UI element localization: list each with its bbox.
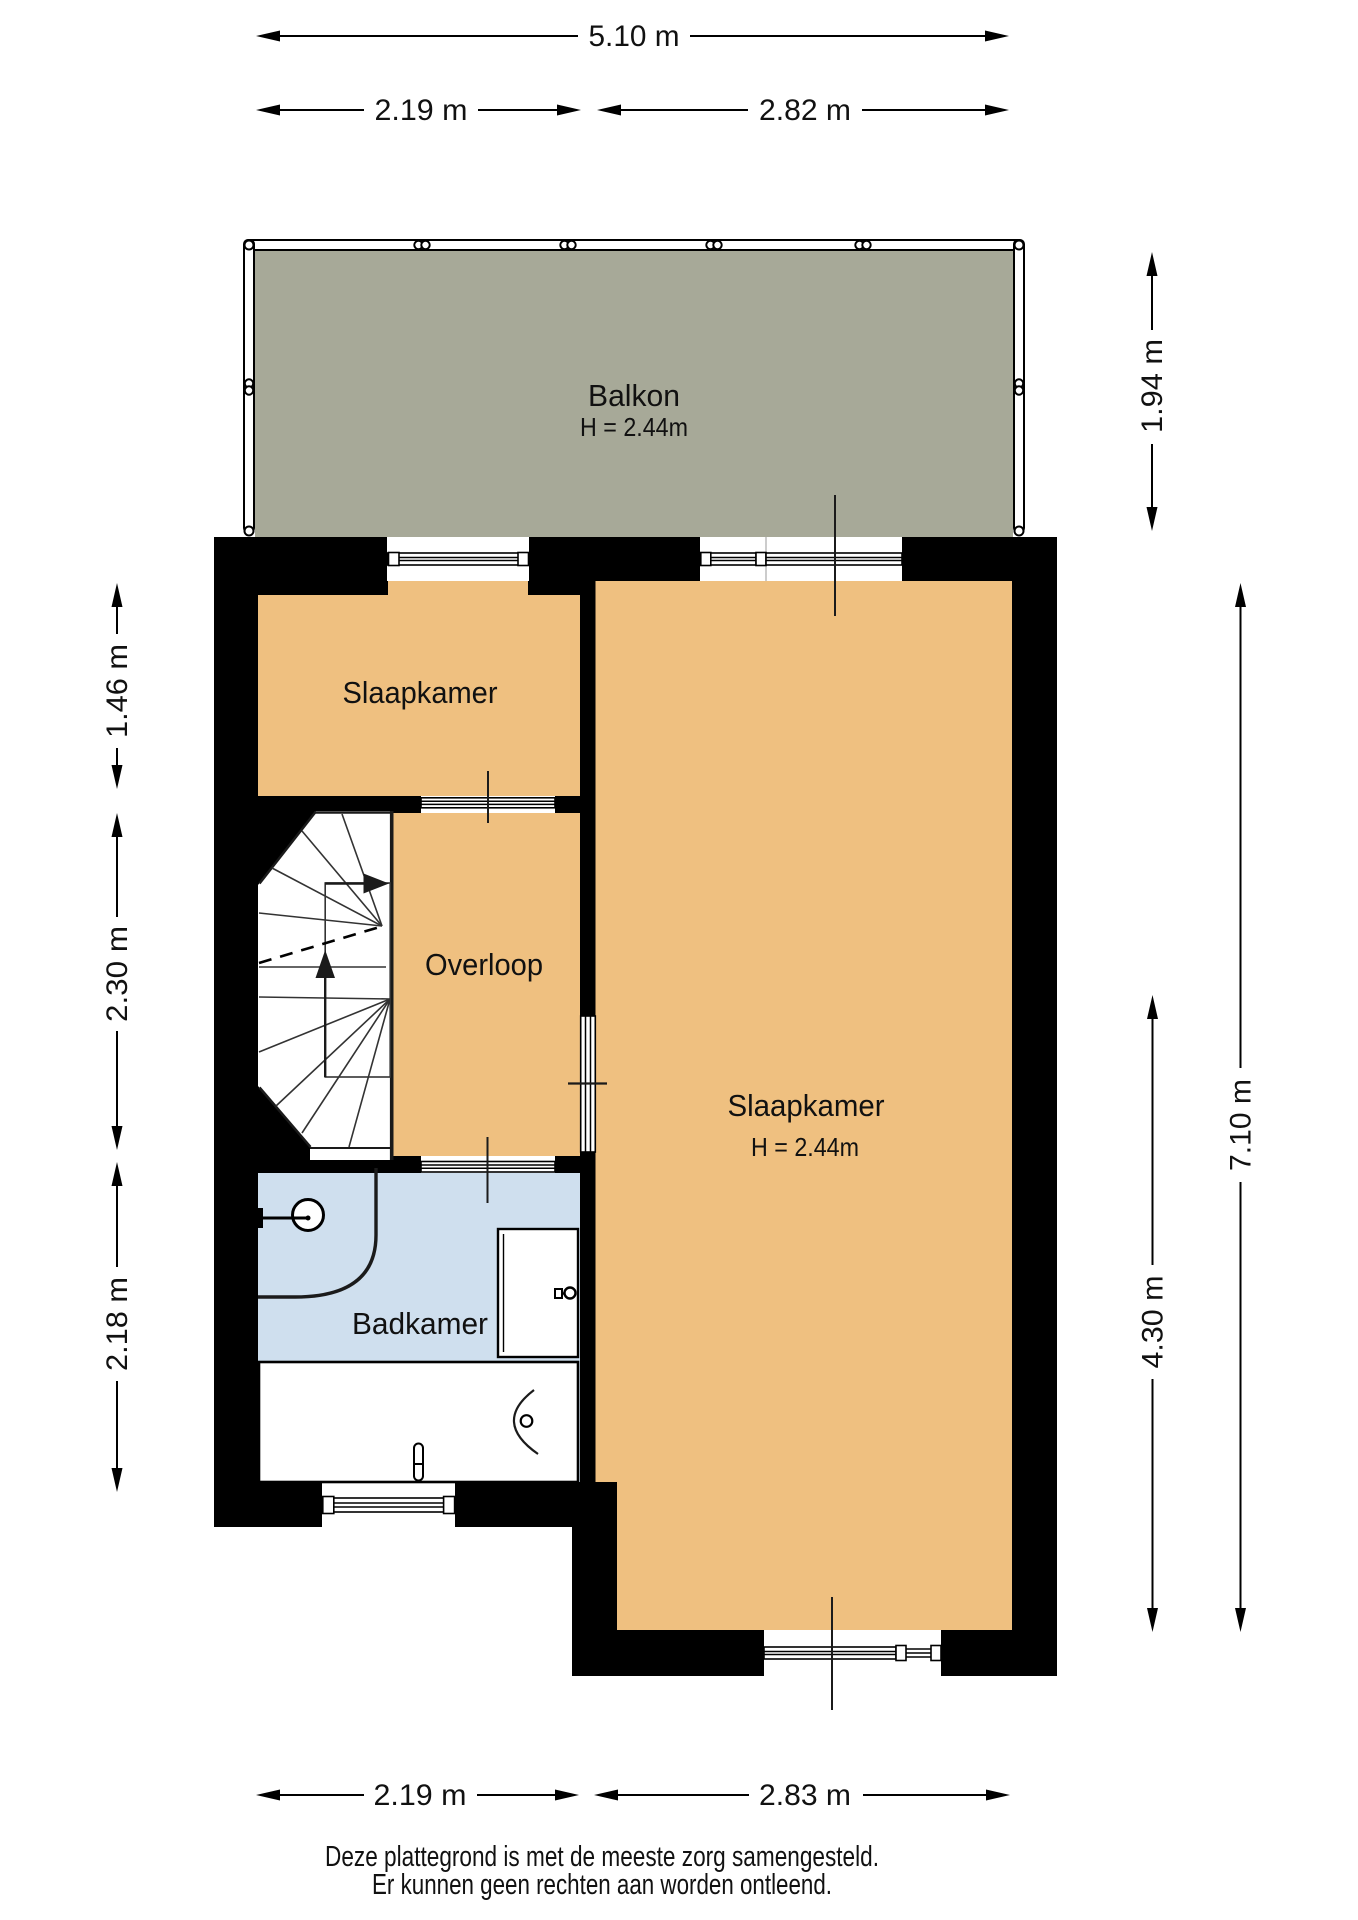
svg-text:Balkon: Balkon xyxy=(588,378,680,413)
svg-text:Badkamer: Badkamer xyxy=(352,1306,488,1341)
svg-text:Overloop: Overloop xyxy=(425,947,543,982)
svg-text:Slaapkamer: Slaapkamer xyxy=(728,1088,885,1123)
svg-text:2.82 m: 2.82 m xyxy=(759,94,851,127)
svg-text:2.18 m: 2.18 m xyxy=(101,1277,134,1371)
svg-text:2.83 m: 2.83 m xyxy=(759,1779,851,1812)
svg-text:2.30 m: 2.30 m xyxy=(101,926,134,1022)
svg-text:7.10 m: 7.10 m xyxy=(1225,1079,1258,1171)
svg-text:H = 2.44m: H = 2.44m xyxy=(751,1132,859,1162)
svg-text:2.19 m: 2.19 m xyxy=(375,94,468,127)
svg-text:Er kunnen geen rechten aan wor: Er kunnen geen rechten aan worden ontlee… xyxy=(372,1869,832,1901)
svg-text:4.30 m: 4.30 m xyxy=(1137,1276,1170,1369)
svg-text:1.94 m: 1.94 m xyxy=(1136,339,1169,433)
svg-text:Slaapkamer: Slaapkamer xyxy=(343,675,498,710)
svg-text:1.46 m: 1.46 m xyxy=(101,644,134,738)
svg-text:5.10 m: 5.10 m xyxy=(589,20,680,53)
svg-text:H = 2.44m: H = 2.44m xyxy=(580,412,688,442)
svg-text:2.19 m: 2.19 m xyxy=(374,1779,467,1812)
